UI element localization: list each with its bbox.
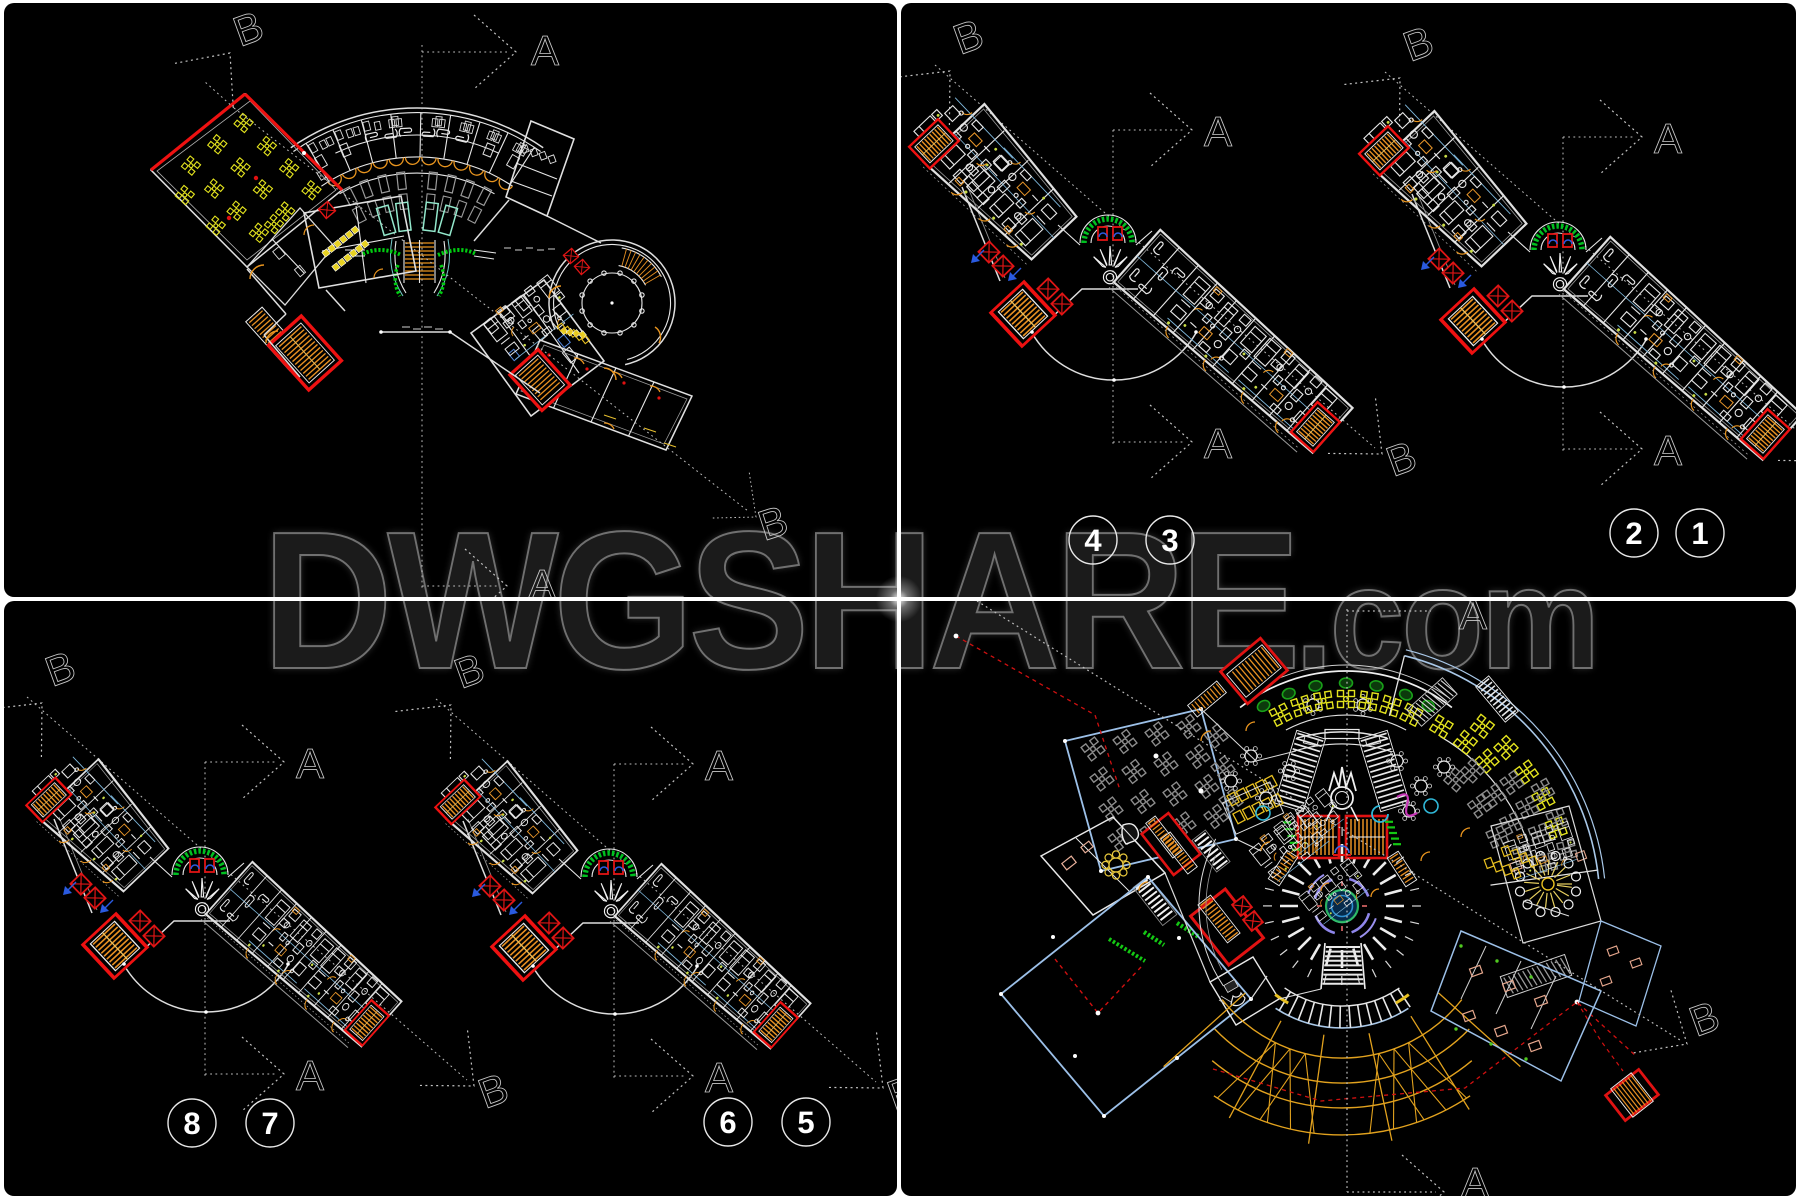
svg-text:1: 1 <box>1691 516 1708 551</box>
svg-text:8: 8 <box>183 1106 200 1141</box>
svg-text:5: 5 <box>797 1105 814 1140</box>
svg-text:B: B <box>1683 992 1725 1046</box>
svg-text:A: A <box>531 27 559 74</box>
svg-text:2: 2 <box>1625 516 1642 551</box>
svg-text:3: 3 <box>1161 523 1178 558</box>
svg-text:A: A <box>1459 601 1487 638</box>
svg-text:B: B <box>752 496 793 549</box>
svg-text:4: 4 <box>1084 523 1102 558</box>
svg-text:A: A <box>528 561 556 597</box>
svg-text:A: A <box>1461 1159 1489 1196</box>
svg-text:7: 7 <box>261 1106 278 1141</box>
svg-text:B: B <box>227 3 269 55</box>
svg-text:6: 6 <box>719 1105 736 1140</box>
